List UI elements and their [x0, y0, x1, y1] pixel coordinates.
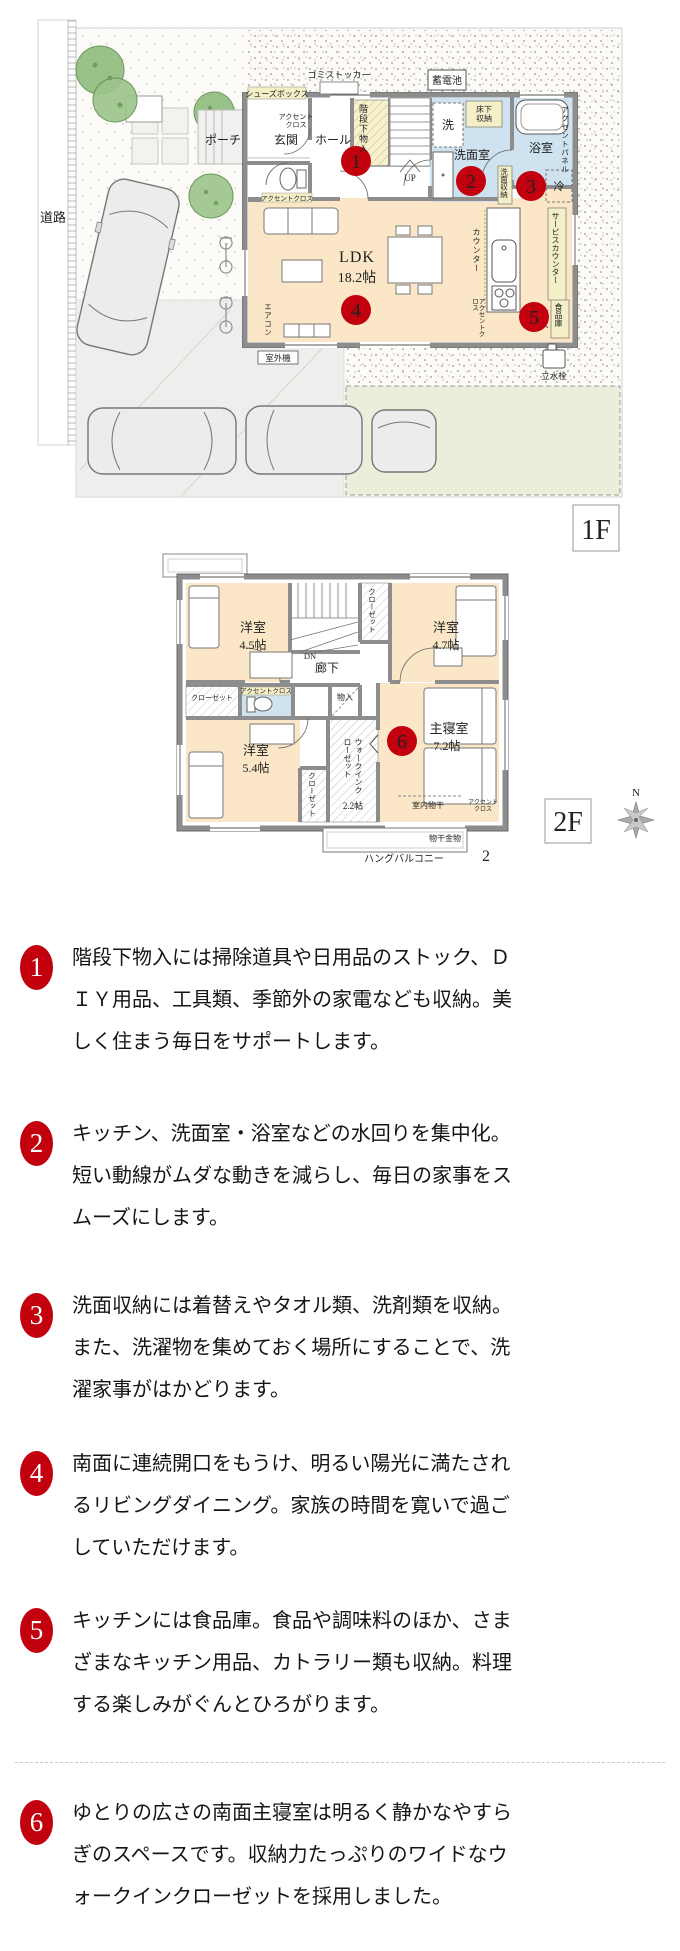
ldk-label: LDK — [339, 249, 375, 266]
washer-label: 洗 — [442, 118, 454, 132]
storage-label: 物入 — [337, 692, 353, 702]
accent-toilet-label: アクセントクロス — [261, 195, 313, 203]
accent-a1: アクセント — [279, 113, 314, 121]
bath-label: 浴室 — [529, 140, 553, 155]
accent-kitchen-label: アクセントクロス — [470, 298, 483, 340]
room45-size: 4.5帖 — [239, 637, 266, 652]
section-1-text: 階段下物入には掃除道具や日用品のストック、ＤＩＹ用品、工具類、季節外の家電なども… — [72, 937, 518, 1063]
closet-btm-label: クローゼット — [308, 772, 316, 820]
section-5-text: キッチンには食品庫。食品や調味料のほか、さまざまなキッチン用品、カトラリー類も収… — [72, 1600, 518, 1726]
gomi-box — [320, 82, 358, 94]
badge-2: 2 — [456, 166, 486, 196]
svg-text:2: 2 — [466, 171, 476, 193]
dn-label: DN — [304, 651, 316, 661]
closet-top-label: クローゼット — [368, 588, 376, 640]
svg-text:5: 5 — [529, 307, 539, 329]
master-size: 7.2帖 — [433, 738, 460, 753]
section-1-badge: 1 — [20, 945, 53, 990]
kitchen — [485, 208, 520, 312]
up-label: UP — [404, 173, 416, 183]
closet-mid-label: クローゼット — [191, 693, 233, 702]
room45-label: 洋室 — [240, 620, 266, 635]
num2-label: 2 — [482, 848, 490, 865]
sofa — [264, 208, 338, 234]
outdoor-unit-label: 室外機 — [265, 353, 291, 363]
badge-4: 4 — [341, 295, 371, 325]
floor2-tag: 2F — [553, 807, 583, 838]
accent-m1: アクセント — [468, 799, 498, 806]
master-label: 主寝室 — [429, 721, 468, 736]
service-counter-label: サービスカウンター — [551, 212, 559, 298]
gomi-label: ゴミストッカー — [307, 69, 370, 80]
curb — [68, 20, 76, 445]
car-bottom-2 — [246, 406, 362, 474]
room54-label: 洋室 — [243, 743, 269, 758]
corridor-label: 廊下 — [315, 660, 339, 675]
wash-storage-label: 洗面収納 — [500, 168, 508, 204]
dry-hw-label: 物干金物 — [429, 833, 461, 843]
badge-6: 6 — [387, 726, 417, 756]
washroom-label: 洗面室 — [454, 147, 490, 162]
accent-toilet2-label: アクセントクロス — [240, 687, 292, 695]
section-6-badge: 6 — [20, 1800, 53, 1845]
section-5-badge: 5 — [20, 1608, 53, 1653]
balcony-label: ハングバルコニー — [364, 852, 444, 865]
road-label: 道路 — [40, 210, 66, 225]
svg-text:3: 3 — [526, 176, 536, 198]
underfloor-label-2: 収納 — [476, 113, 492, 123]
badge-3: 3 — [516, 171, 546, 201]
toilet-2f — [247, 697, 272, 712]
tap-label: 立水栓 — [541, 371, 567, 381]
battery-label: 蓄電池 — [432, 74, 462, 87]
aircon-label: エアコン — [264, 303, 272, 343]
section-4-text: 南面に連続開口をもうけ、明るい陽光に満たされるリビングダイニング。家族の時間を寛… — [72, 1443, 518, 1569]
room54-size: 5.4帖 — [242, 760, 269, 775]
site-plan-1f: 道路 — [38, 20, 622, 551]
road-strip — [38, 20, 68, 445]
section-2-text: キッチン、洗面室・浴室などの水回りを集中化。短い動線がムダな動きを減らし、毎日の… — [72, 1113, 518, 1239]
shoes-label: シューズボックス — [245, 89, 308, 99]
room47-label: 洋室 — [433, 620, 459, 635]
section-4-badge: 4 — [20, 1451, 53, 1496]
accent-panel-label: アクセントパネル — [561, 106, 569, 184]
svg-text:6: 6 — [397, 731, 407, 753]
underfloor-label-1: 床下 — [476, 104, 492, 114]
accent-m2: クロス — [474, 806, 492, 813]
section-divider — [15, 1762, 665, 1763]
badge-5: 5 — [519, 302, 549, 332]
tv-board — [284, 324, 330, 337]
plan-2f: 洋室 4.5帖 洋室 4.7帖 DN 廊下 物入 クローゼット アクセントクロス… — [163, 554, 654, 865]
section-2-badge: 2 — [20, 1121, 53, 1166]
car-lawn — [372, 410, 436, 472]
svg-text:4: 4 — [351, 300, 361, 322]
accent-a2: クロス — [286, 121, 307, 129]
car-bottom-1 — [88, 408, 236, 474]
entrance-label: 玄関 — [274, 132, 298, 147]
indoor-dry-label: 室内物干 — [412, 800, 444, 810]
pantry-label: 食品庫 — [554, 303, 562, 337]
hall-label: ホール — [315, 133, 351, 147]
wic-label: ウォークインクローゼット — [340, 738, 364, 794]
section-3-badge: 3 — [20, 1293, 53, 1338]
section-3-text: 洗面収納には着替えやタオル類、洗剤類を収納。また、洗濯物を集めておく場所にするこ… — [72, 1285, 518, 1411]
counter-label: カウンター — [472, 228, 480, 292]
compass-icon: N — [618, 787, 654, 838]
roof-corner — [163, 554, 247, 577]
section-6-text: ゆとりの広さの南面主寝室は明るく静かなやすらぎのスペースです。収納力たっぷりのワ… — [72, 1792, 518, 1918]
gravel-right — [577, 93, 622, 385]
wic-size-label: 2.2帖 — [343, 800, 363, 811]
porch-label: ポーチ — [205, 133, 241, 147]
floor1-tag: 1F — [581, 515, 611, 546]
floorplan-page: 道路 — [0, 0, 680, 1951]
room47-size: 4.7帖 — [432, 637, 459, 652]
under-stair-label: 階段下物入 — [358, 104, 367, 164]
ldk-size-label: 18.2帖 — [338, 270, 377, 286]
toilet-1f — [280, 168, 306, 190]
low-table — [282, 260, 322, 282]
north-label: N — [632, 787, 640, 799]
